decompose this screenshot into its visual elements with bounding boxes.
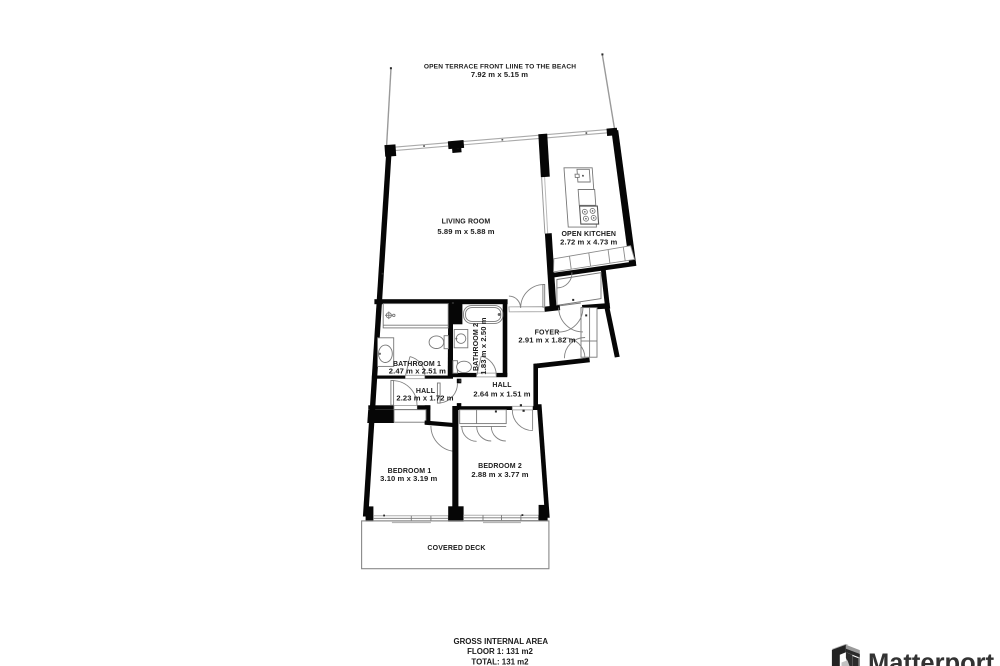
svg-text:GROSS INTERNAL AREA: GROSS INTERNAL AREA xyxy=(453,637,548,646)
svg-text:3.10 m x 3.19 m: 3.10 m x 3.19 m xyxy=(380,474,437,483)
svg-text:2.91 m x 1.82 m: 2.91 m x 1.82 m xyxy=(518,336,575,345)
svg-text:1.83 m x 2.50 m: 1.83 m x 2.50 m xyxy=(479,317,488,374)
svg-text:7.92 m x 5.15 m: 7.92 m x 5.15 m xyxy=(471,70,528,79)
svg-text:COVERED DECK: COVERED DECK xyxy=(427,545,485,552)
svg-text:2.88 m x 3.77 m: 2.88 m x 3.77 m xyxy=(471,470,528,479)
svg-text:2.64 m x 1.51 m: 2.64 m x 1.51 m xyxy=(473,389,530,398)
svg-text:LIVING ROOM: LIVING ROOM xyxy=(442,219,491,226)
svg-text:FLOOR 1: 131 m2: FLOOR 1: 131 m2 xyxy=(467,647,533,656)
svg-text:TOTAL: 131 m2: TOTAL: 131 m2 xyxy=(471,658,529,666)
svg-text:2.47 m x 2.51 m: 2.47 m x 2.51 m xyxy=(389,366,446,375)
svg-text:HALL: HALL xyxy=(492,382,512,389)
svg-text:5.89 m x 5.88 m: 5.89 m x 5.88 m xyxy=(437,227,494,236)
svg-text:2.72 m x 4.73 m: 2.72 m x 4.73 m xyxy=(560,238,617,247)
svg-text:2.23 m x 1.72 m: 2.23 m x 1.72 m xyxy=(396,393,453,402)
svg-text:Matterport: Matterport xyxy=(868,650,995,666)
